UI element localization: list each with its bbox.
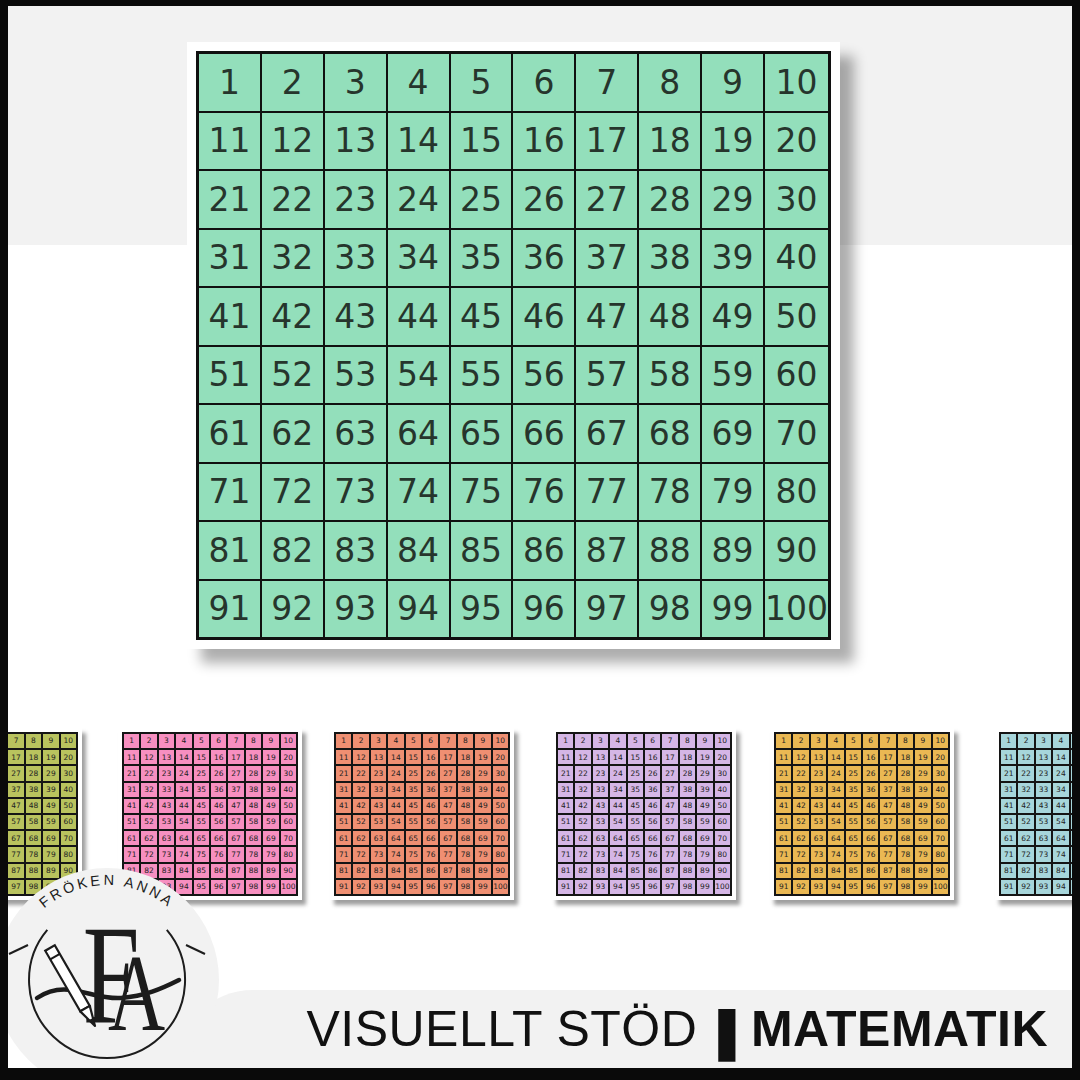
chart-cell: 34	[609, 782, 626, 798]
chart-cell: 41	[775, 798, 792, 814]
chart-cell: 44	[609, 798, 626, 814]
chart-cell: 20	[932, 749, 949, 765]
chart-cell: 36	[512, 229, 575, 288]
chart-cell: 27	[661, 765, 678, 781]
chart-cell: 30	[280, 765, 297, 781]
small-chart-lavender: 1234567891011121314151617181920212223242…	[552, 728, 736, 900]
chart-cell: 43	[324, 287, 387, 346]
chart-cell: 26	[422, 765, 439, 781]
chart-cell: 36	[644, 782, 661, 798]
chart-cell: 8	[457, 733, 474, 749]
chart-cell: 10	[492, 733, 509, 749]
chart-cell: 9	[42, 733, 59, 749]
chart-cell: 48	[245, 798, 262, 814]
chart-cell: 17	[227, 749, 244, 765]
chart-cell: 70	[932, 830, 949, 846]
chart-cell: 66	[644, 830, 661, 846]
chart-cell: 16	[644, 749, 661, 765]
chart-cell: 54	[827, 814, 844, 830]
chart-cell: 60	[714, 814, 731, 830]
chart-cell: 21	[123, 765, 140, 781]
chart-cell: 39	[914, 782, 931, 798]
chart-cell: 70	[764, 404, 829, 463]
chart-cell: 31	[198, 229, 261, 288]
chart-cell: 39	[262, 782, 279, 798]
chart-cell: 47	[227, 798, 244, 814]
chart-cell: 2	[140, 733, 157, 749]
chart-cell: 12	[574, 749, 591, 765]
chart-cell: 48	[897, 798, 914, 814]
chart-cell: 59	[42, 814, 59, 830]
chart-cell: 46	[644, 798, 661, 814]
chart-cell: 65	[627, 830, 644, 846]
chart-cell: 79	[474, 846, 491, 862]
monogram-a: A	[108, 932, 165, 1054]
chart-cell: 30	[714, 765, 731, 781]
chart-cell: 42	[574, 798, 591, 814]
chart-cell: 33	[1035, 782, 1052, 798]
chart-cell: 11	[123, 749, 140, 765]
chart-cell: 9	[914, 733, 931, 749]
chart-cell: 23	[158, 765, 175, 781]
chart-cell: 92	[352, 879, 369, 895]
chart-cell: 95	[845, 879, 862, 895]
chart-cell: 63	[158, 830, 175, 846]
chart-cell: 12	[261, 112, 324, 171]
chart-cell: 75	[1070, 846, 1072, 862]
chart-cell: 87	[575, 521, 638, 580]
small-chart-teal: 1234567891011121314151617181920212223242…	[995, 728, 1072, 900]
chart-cell: 20	[280, 749, 297, 765]
chart-cell: 15	[845, 749, 862, 765]
chart-cell: 58	[245, 814, 262, 830]
chart-cell: 38	[638, 229, 701, 288]
chart-cell: 62	[261, 404, 324, 463]
chart-cell: 81	[198, 521, 261, 580]
chart-cell: 15	[405, 749, 422, 765]
chart-cell: 100	[280, 879, 297, 895]
chart-cell: 55	[193, 814, 210, 830]
chart-cell: 28	[897, 765, 914, 781]
chart-cell: 71	[335, 846, 352, 862]
chart-cell: 77	[575, 463, 638, 522]
chart-cell: 56	[862, 814, 879, 830]
chart-cell: 96	[422, 879, 439, 895]
chart-cell: 12	[792, 749, 809, 765]
chart-cell: 75	[405, 846, 422, 862]
chart-cell: 82	[574, 863, 591, 879]
chart-cell: 77	[439, 846, 456, 862]
chart-cell: 99	[914, 879, 931, 895]
chart-cell: 7	[227, 733, 244, 749]
chart-cell: 54	[1052, 814, 1069, 830]
chart-cell: 29	[474, 765, 491, 781]
chart-cell: 75	[627, 846, 644, 862]
chart-cell: 47	[575, 287, 638, 346]
chart-cell: 50	[764, 287, 829, 346]
chart-cell: 65	[193, 830, 210, 846]
chart-cell: 22	[140, 765, 157, 781]
chart-cell: 32	[574, 782, 591, 798]
chart-cell: 45	[845, 798, 862, 814]
chart-cell: 97	[227, 879, 244, 895]
chart-cell: 42	[1017, 798, 1034, 814]
chart-cell: 9	[262, 733, 279, 749]
chart-cell: 82	[261, 521, 324, 580]
chart-cell: 34	[175, 782, 192, 798]
chart-cell: 16	[422, 749, 439, 765]
chart-cell: 55	[845, 814, 862, 830]
chart-cell: 32	[261, 229, 324, 288]
chart-cell: 67	[575, 404, 638, 463]
chart-cell: 21	[775, 765, 792, 781]
chart-cell: 58	[679, 814, 696, 830]
chart-cell: 30	[492, 765, 509, 781]
chart-cell: 76	[422, 846, 439, 862]
hundred-chart-teal: 1234567891011121314151617181920212223242…	[999, 732, 1072, 896]
chart-cell: 75	[450, 463, 513, 522]
chart-cell: 93	[810, 879, 827, 895]
chart-cell: 23	[370, 765, 387, 781]
chart-cell: 1	[198, 53, 261, 112]
chart-cell: 27	[879, 765, 896, 781]
chart-cell: 12	[1017, 749, 1034, 765]
chart-cell: 74	[1052, 846, 1069, 862]
chart-cell: 24	[175, 765, 192, 781]
chart-cell: 52	[1017, 814, 1034, 830]
chart-cell: 63	[810, 830, 827, 846]
chart-cell: 37	[227, 782, 244, 798]
chart-cell: 33	[158, 782, 175, 798]
chart-cell: 49	[701, 287, 764, 346]
chart-cell: 42	[792, 798, 809, 814]
chart-cell: 63	[1035, 830, 1052, 846]
chart-cell: 53	[158, 814, 175, 830]
hundred-chart-lavender: 1234567891011121314151617181920212223242…	[556, 732, 732, 896]
chart-cell: 61	[557, 830, 574, 846]
chart-cell: 96	[644, 879, 661, 895]
main-chart-card: 1234567891011121314151617181920212223242…	[187, 42, 840, 649]
chart-cell: 50	[932, 798, 949, 814]
chart-cell: 3	[810, 733, 827, 749]
chart-cell: 47	[8, 798, 25, 814]
chart-cell: 57	[661, 814, 678, 830]
chart-cell: 76	[210, 846, 227, 862]
chart-cell: 56	[422, 814, 439, 830]
chart-cell: 12	[352, 749, 369, 765]
chart-cell: 88	[897, 863, 914, 879]
chart-cell: 52	[140, 814, 157, 830]
chart-cell: 87	[661, 863, 678, 879]
chart-cell: 48	[25, 798, 42, 814]
chart-cell: 14	[827, 749, 844, 765]
chart-cell: 45	[193, 798, 210, 814]
chart-cell: 39	[42, 782, 59, 798]
chart-cell: 89	[262, 863, 279, 879]
chart-cell: 69	[914, 830, 931, 846]
hundred-chart-gold: 1234567891011121314151617181920212223242…	[774, 732, 950, 896]
chart-cell: 53	[592, 814, 609, 830]
chart-cell: 37	[439, 782, 456, 798]
chart-cell: 11	[557, 749, 574, 765]
chart-cell: 88	[638, 521, 701, 580]
chart-cell: 38	[457, 782, 474, 798]
chart-cell: 1	[123, 733, 140, 749]
chart-cell: 28	[245, 765, 262, 781]
chart-cell: 80	[60, 846, 77, 862]
chart-cell: 42	[140, 798, 157, 814]
chart-cell: 58	[897, 814, 914, 830]
chart-cell: 70	[714, 830, 731, 846]
chart-cell: 25	[450, 170, 513, 229]
chart-cell: 49	[696, 798, 713, 814]
chart-cell: 64	[387, 830, 404, 846]
chart-cell: 74	[387, 463, 450, 522]
chart-cell: 74	[827, 846, 844, 862]
chart-cell: 26	[862, 765, 879, 781]
chart-cell: 64	[175, 830, 192, 846]
chart-cell: 57	[8, 814, 25, 830]
chart-cell: 99	[262, 879, 279, 895]
chart-cell: 50	[714, 798, 731, 814]
chart-cell: 95	[1070, 879, 1072, 895]
chart-cell: 40	[492, 782, 509, 798]
chart-cell: 73	[158, 846, 175, 862]
chart-cell: 73	[324, 463, 387, 522]
chart-cell: 72	[792, 846, 809, 862]
chart-cell: 10	[714, 733, 731, 749]
chart-cell: 27	[8, 765, 25, 781]
chart-cell: 45	[627, 798, 644, 814]
chart-cell: 4	[1052, 733, 1069, 749]
chart-cell: 85	[1070, 863, 1072, 879]
chart-cell: 25	[405, 765, 422, 781]
chart-cell: 59	[474, 814, 491, 830]
chart-cell: 54	[175, 814, 192, 830]
chart-cell: 68	[245, 830, 262, 846]
chart-cell: 71	[123, 846, 140, 862]
chart-cell: 1	[335, 733, 352, 749]
chart-cell: 10	[764, 53, 829, 112]
chart-cell: 71	[1000, 846, 1017, 862]
chart-cell: 98	[245, 879, 262, 895]
chart-cell: 91	[775, 879, 792, 895]
chart-cell: 88	[457, 863, 474, 879]
chart-cell: 67	[879, 830, 896, 846]
chart-cell: 70	[280, 830, 297, 846]
chart-cell: 67	[8, 830, 25, 846]
chart-cell: 30	[60, 765, 77, 781]
chart-cell: 41	[198, 287, 261, 346]
chart-cell: 18	[25, 749, 42, 765]
chart-cell: 86	[644, 863, 661, 879]
chart-cell: 15	[627, 749, 644, 765]
chart-cell: 95	[405, 879, 422, 895]
chart-cell: 22	[1017, 765, 1034, 781]
chart-cell: 45	[405, 798, 422, 814]
chart-cell: 43	[592, 798, 609, 814]
chart-cell: 68	[457, 830, 474, 846]
chart-cell: 79	[696, 846, 713, 862]
chart-cell: 53	[370, 814, 387, 830]
chart-cell: 36	[210, 782, 227, 798]
chart-cell: 69	[701, 404, 764, 463]
chart-cell: 89	[696, 863, 713, 879]
chart-cell: 60	[764, 346, 829, 405]
chart-cell: 21	[557, 765, 574, 781]
chart-cell: 20	[714, 749, 731, 765]
chart-cell: 27	[227, 765, 244, 781]
chart-cell: 66	[210, 830, 227, 846]
chart-cell: 25	[627, 765, 644, 781]
chart-cell: 15	[193, 749, 210, 765]
chart-cell: 73	[1035, 846, 1052, 862]
chart-cell: 50	[492, 798, 509, 814]
chart-cell: 11	[335, 749, 352, 765]
chart-cell: 17	[661, 749, 678, 765]
chart-cell: 59	[701, 346, 764, 405]
chart-cell: 93	[370, 879, 387, 895]
chart-cell: 59	[262, 814, 279, 830]
chart-cell: 92	[261, 580, 324, 639]
chart-cell: 87	[227, 863, 244, 879]
chart-cell: 31	[775, 782, 792, 798]
chart-cell: 51	[123, 814, 140, 830]
chart-cell: 84	[387, 863, 404, 879]
chart-cell: 47	[879, 798, 896, 814]
chart-cell: 32	[140, 782, 157, 798]
chart-cell: 93	[1035, 879, 1052, 895]
chart-cell: 37	[575, 229, 638, 288]
chart-cell: 41	[1000, 798, 1017, 814]
chart-cell: 17	[879, 749, 896, 765]
chart-cell: 83	[592, 863, 609, 879]
chart-cell: 27	[439, 765, 456, 781]
chart-cell: 22	[352, 765, 369, 781]
chart-cell: 16	[210, 749, 227, 765]
chart-cell: 98	[457, 879, 474, 895]
chart-cell: 3	[1035, 733, 1052, 749]
chart-cell: 64	[1052, 830, 1069, 846]
chart-cell: 44	[827, 798, 844, 814]
chart-cell: 63	[370, 830, 387, 846]
chart-cell: 99	[701, 580, 764, 639]
chart-cell: 76	[862, 846, 879, 862]
chart-cell: 71	[775, 846, 792, 862]
chart-cell: 89	[914, 863, 931, 879]
chart-cell: 35	[450, 229, 513, 288]
chart-cell: 34	[387, 782, 404, 798]
chart-cell: 76	[644, 846, 661, 862]
chart-cell: 10	[60, 733, 77, 749]
chart-cell: 10	[280, 733, 297, 749]
chart-cell: 3	[324, 53, 387, 112]
chart-cell: 94	[387, 580, 450, 639]
hundred-chart-main: 1234567891011121314151617181920212223242…	[196, 51, 831, 640]
chart-cell: 58	[457, 814, 474, 830]
chart-cell: 8	[897, 733, 914, 749]
chart-cell: 20	[764, 112, 829, 171]
chart-cell: 75	[845, 846, 862, 862]
chart-cell: 12	[140, 749, 157, 765]
chart-cell: 7	[8, 733, 25, 749]
chart-cell: 49	[914, 798, 931, 814]
chart-cell: 8	[25, 733, 42, 749]
chart-cell: 84	[827, 863, 844, 879]
chart-cell: 83	[370, 863, 387, 879]
chart-cell: 44	[387, 798, 404, 814]
chart-cell: 69	[262, 830, 279, 846]
chart-cell: 63	[324, 404, 387, 463]
chart-cell: 11	[198, 112, 261, 171]
chart-cell: 13	[370, 749, 387, 765]
chart-cell: 21	[198, 170, 261, 229]
chart-cell: 44	[175, 798, 192, 814]
chart-cell: 24	[609, 765, 626, 781]
chart-cell: 69	[42, 830, 59, 846]
chart-cell: 43	[810, 798, 827, 814]
chart-cell: 49	[42, 798, 59, 814]
chart-cell: 63	[592, 830, 609, 846]
chart-cell: 5	[193, 733, 210, 749]
chart-cell: 35	[193, 782, 210, 798]
chart-cell: 61	[1000, 830, 1017, 846]
chart-cell: 30	[764, 170, 829, 229]
chart-cell: 79	[914, 846, 931, 862]
chart-cell: 5	[1070, 733, 1072, 749]
chart-cell: 77	[8, 846, 25, 862]
chart-cell: 45	[1070, 798, 1072, 814]
chart-cell: 21	[1000, 765, 1017, 781]
chart-cell: 100	[764, 580, 829, 639]
chart-cell: 59	[914, 814, 931, 830]
chart-cell: 4	[387, 53, 450, 112]
chart-cell: 24	[387, 170, 450, 229]
chart-cell: 57	[227, 814, 244, 830]
chart-cell: 42	[261, 287, 324, 346]
chart-cell: 25	[845, 765, 862, 781]
chart-cell: 24	[1052, 765, 1069, 781]
chart-cell: 80	[714, 846, 731, 862]
chart-cell: 79	[701, 463, 764, 522]
chart-cell: 41	[557, 798, 574, 814]
chart-cell: 68	[638, 404, 701, 463]
chart-cell: 39	[696, 782, 713, 798]
chart-cell: 1	[1000, 733, 1017, 749]
chart-cell: 80	[764, 463, 829, 522]
chart-cell: 4	[387, 733, 404, 749]
chart-cell: 6	[210, 733, 227, 749]
chart-cell: 19	[42, 749, 59, 765]
chart-cell: 4	[175, 733, 192, 749]
chart-cell: 40	[280, 782, 297, 798]
chart-cell: 38	[897, 782, 914, 798]
chart-cell: 17	[8, 749, 25, 765]
chart-cell: 23	[592, 765, 609, 781]
chart-cell: 23	[1035, 765, 1052, 781]
chart-cell: 96	[862, 879, 879, 895]
chart-cell: 55	[405, 814, 422, 830]
chart-cell: 94	[827, 879, 844, 895]
chart-cell: 91	[557, 879, 574, 895]
chart-cell: 8	[245, 733, 262, 749]
chart-cell: 65	[450, 404, 513, 463]
chart-cell: 37	[8, 782, 25, 798]
chart-cell: 100	[932, 879, 949, 895]
chart-cell: 68	[25, 830, 42, 846]
chart-cell: 72	[261, 463, 324, 522]
chart-cell: 78	[245, 846, 262, 862]
